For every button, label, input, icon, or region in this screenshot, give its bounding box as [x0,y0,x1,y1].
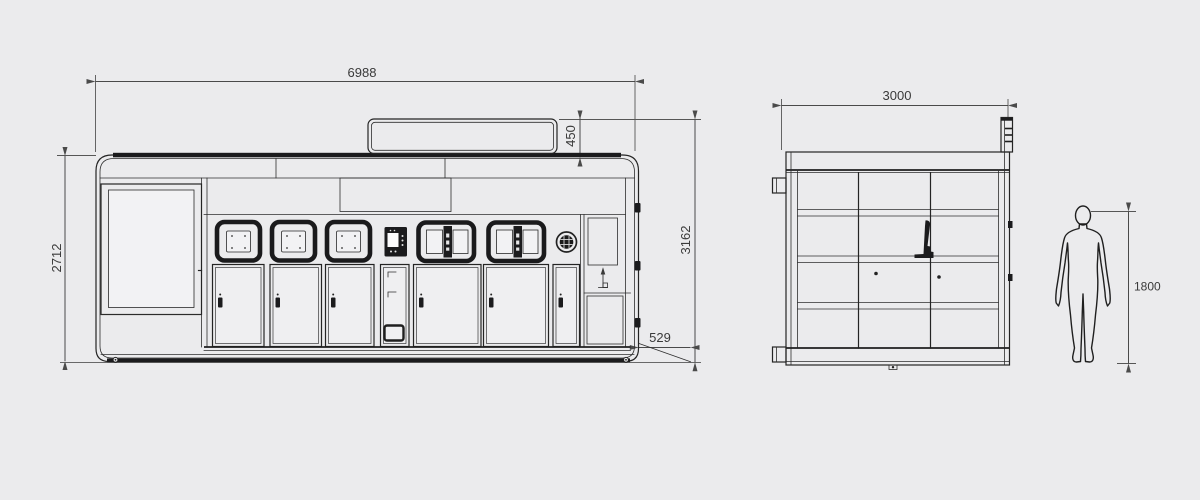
base-rail [101,347,634,355]
cabinet-door-4 [381,265,410,347]
control-button [402,240,404,242]
left-panel-glass [109,190,195,308]
side-outer-outline [786,152,1010,365]
double-window-1 [419,223,475,262]
human-body-outline [1056,224,1111,362]
dim-ramp-depth-label: 529 [649,330,671,345]
side-hinge [1008,274,1013,281]
header-panel [340,178,451,212]
roof-sign-box [368,119,557,154]
human-height-dimension: 1800 [1091,212,1161,364]
double-windows [419,223,545,262]
front-view: 6988 2712 450 3162 529 [49,65,701,363]
human-figure: 1800 [1056,206,1161,364]
right-access-panel [584,218,631,344]
control-button [395,251,397,253]
cabinet-door-2 [270,265,322,347]
control-button [390,251,392,253]
cabinet-door-7 [553,265,580,347]
access-panel [588,218,618,265]
ramp-line [639,344,691,362]
machine-drawing: 6988 2712 450 3162 529 [0,0,1200,500]
hinge-top [635,203,641,213]
panel-dot [874,272,878,276]
control-screen [388,233,399,247]
cabinet-door-3 [326,265,375,347]
control-button [402,244,404,246]
viewing-window-2 [272,222,315,261]
control-panel [385,227,408,257]
viewing-window-3 [327,222,370,261]
cabinet-door-5 [414,265,482,347]
sign-box-outer [368,119,557,154]
side-handle-bottom [773,347,787,362]
side-machine-body [773,118,1013,370]
human-head [1076,206,1091,225]
sign-box-inner [372,122,554,150]
leader-arrow [601,267,606,274]
cabinet-door-1 [213,265,265,347]
door-hatch [385,326,404,341]
left-window-panel [101,184,202,315]
dim-depth-label: 3000 [883,88,912,103]
dim-total-height-label: 3162 [678,226,693,255]
hinge-bottom [635,318,641,328]
dim-sign-height-label: 450 [563,125,578,147]
double-window-2 [489,223,545,262]
viewing-windows [217,222,370,261]
panel-dot [937,275,941,279]
side-hinge [1008,221,1013,228]
dim-person-height-label: 1800 [1134,280,1161,294]
side-view: 3000 [773,88,1013,370]
dim-body-height-label: 2712 [49,244,64,273]
roof-rail [1001,118,1013,153]
technical-drawing-canvas: 6988 2712 450 3162 529 [0,0,1200,500]
dim-overall-width-label: 6988 [348,65,377,80]
side-handle-top [773,178,787,193]
side-dimensions: 3000 [782,88,1009,150]
right-lower-door [587,296,623,344]
hinge-middle [635,261,641,271]
control-button [402,235,404,237]
cabinet-door-6 [484,265,549,347]
cabinet-doors [213,265,580,347]
fan-vent [557,232,577,252]
base-dark-band [107,358,630,362]
viewing-window-1 [217,222,260,261]
